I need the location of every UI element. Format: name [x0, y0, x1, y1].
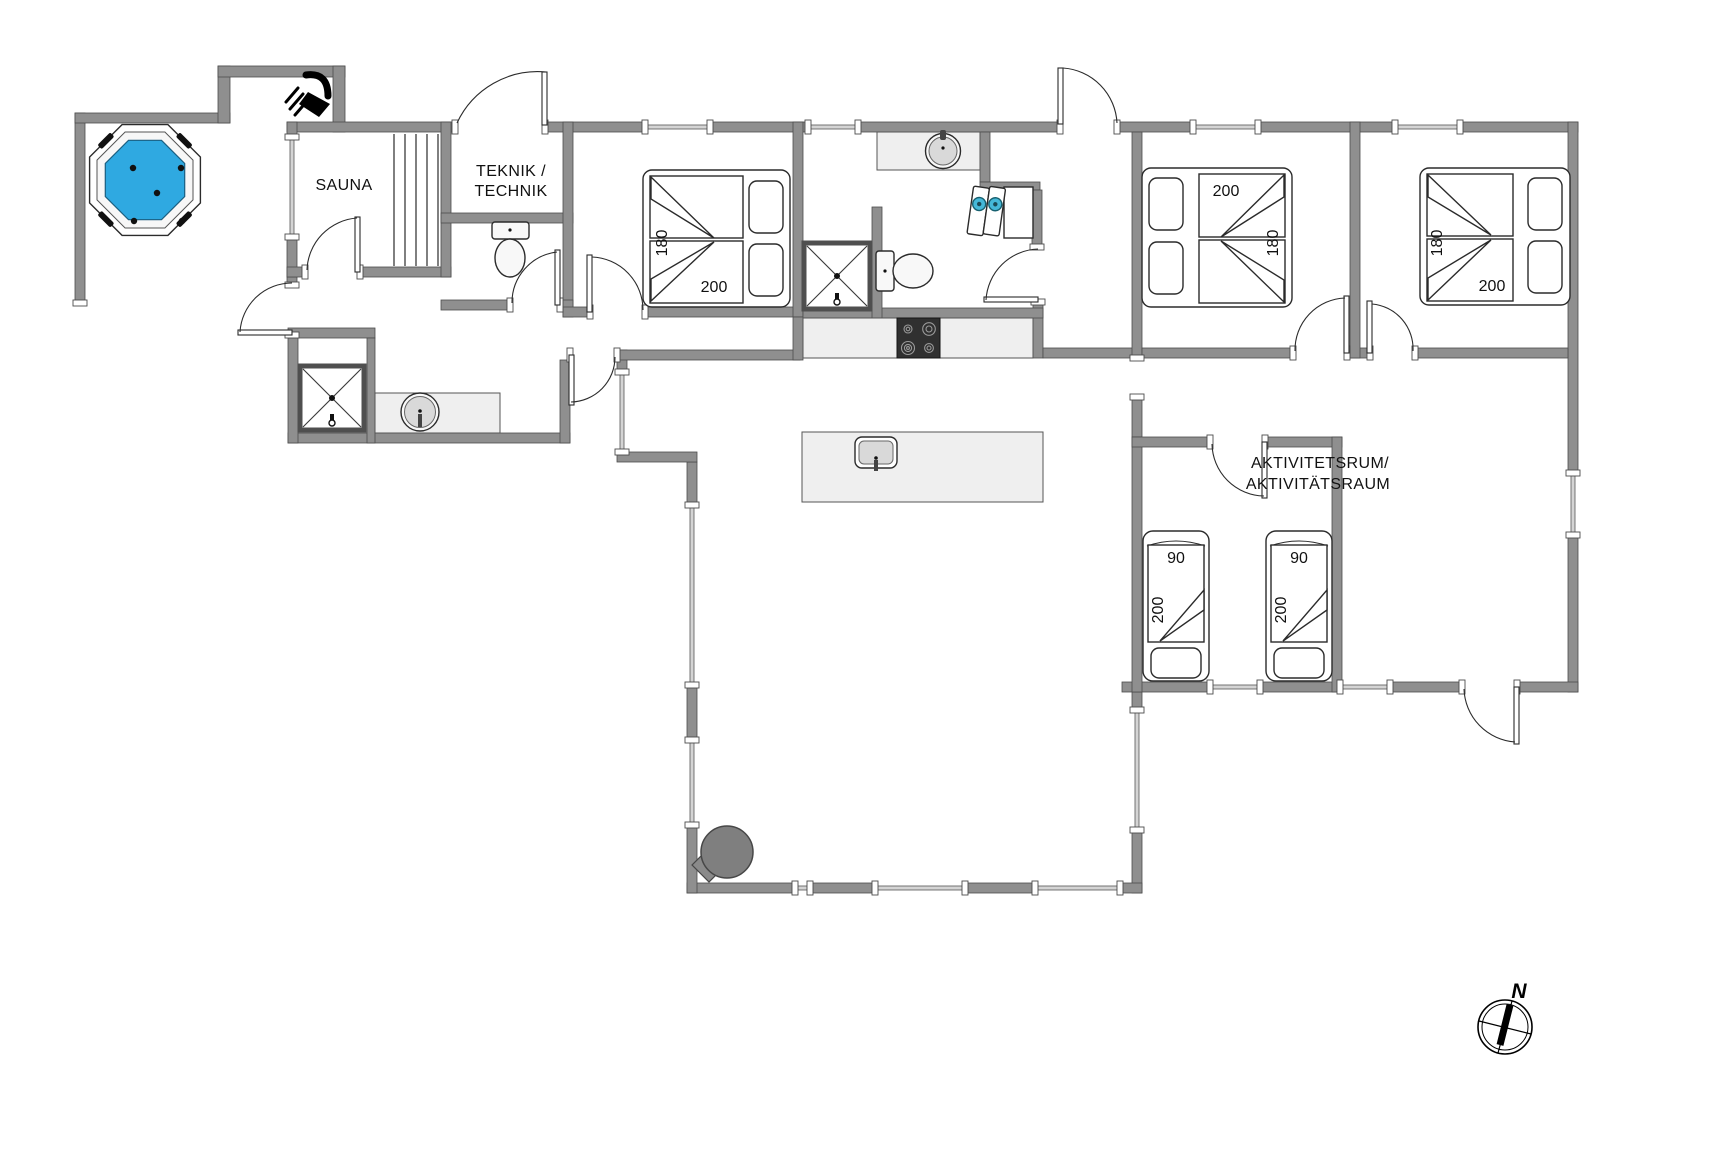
hot-tub: [90, 125, 201, 236]
hall-bathroom-sink: [375, 393, 500, 433]
outdoor-shower-icon: [286, 75, 330, 117]
toilet-icon: [876, 251, 933, 291]
bed-length-label: 200: [701, 279, 728, 296]
kitchen-island: [802, 432, 1043, 502]
sauna-benches: [394, 134, 438, 266]
room-label-teknik-1: TEKNIK /: [476, 163, 546, 180]
double-bed: 200 180: [1142, 168, 1292, 307]
bed-width-label: 180: [1265, 230, 1282, 257]
compass-rose: N: [1478, 980, 1532, 1054]
toilet-icon: [492, 222, 529, 277]
cooktop-icon: [897, 318, 940, 358]
bathroom-sink: [877, 130, 980, 170]
bed-length-label: 200: [1273, 597, 1290, 624]
shower-icon: [804, 243, 870, 309]
bed-width-label: 180: [1429, 230, 1446, 257]
bed-length-label: 200: [1479, 278, 1506, 295]
bed-width-label: 90: [1290, 550, 1308, 567]
double-bed: 180 200: [1420, 168, 1570, 305]
room-label-teknik-2: TECHNIK: [474, 183, 547, 200]
room-label-activity-2: AKTIVITÄTSRAUM: [1246, 475, 1390, 493]
hot-tub-water: [105, 140, 184, 219]
bed-width-label: 90: [1167, 550, 1185, 567]
room-label-sauna: SAUNA: [315, 177, 372, 194]
bed-length-label: 200: [1150, 597, 1167, 624]
single-bed: 90 200: [1266, 531, 1332, 681]
room-label-activity-1: AKTIVITETSRUM/: [1251, 455, 1389, 472]
compass-north-label: N: [1511, 980, 1527, 1003]
double-bed: 180 200: [643, 170, 790, 307]
bed-length-label: 200: [1213, 183, 1240, 200]
floor-plan: 180 200 200 180 180 200 90 200: [0, 0, 1733, 1167]
shower-icon: [300, 366, 364, 430]
wood-stove-icon: [692, 826, 753, 882]
single-bed: 90 200: [1143, 531, 1209, 681]
washer-dryer-icon: [967, 184, 1033, 238]
bed-width-label: 180: [654, 230, 671, 257]
